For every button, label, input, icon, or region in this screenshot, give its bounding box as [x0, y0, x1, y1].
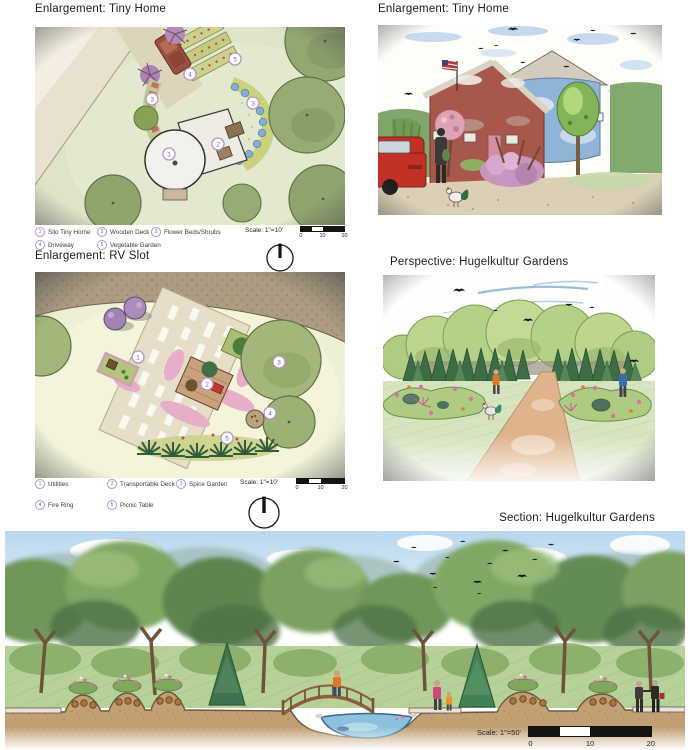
rv-slot-plan-drawing: 1 2 3 4 5: [35, 272, 345, 478]
legend-marker: 2: [107, 479, 117, 489]
hugelkultur-perspective-title: Perspective: Hugelkultur Gardens: [390, 256, 568, 268]
hugelkultur-perspective-drawing: [383, 275, 655, 481]
north-arrow-icon: [245, 494, 283, 532]
tiny-home-perspective-drawing: [378, 25, 662, 215]
legend-label: Spice Garden: [189, 481, 228, 488]
tiny-home-plan-title: Enlargement: Tiny Home: [35, 3, 166, 15]
scale-bar: [528, 726, 652, 737]
hugelkultur-section-drawing: [5, 531, 685, 750]
rv-slot-plan-title: Enlargement: RV Slot: [35, 250, 149, 262]
legend-marker: 4: [35, 500, 45, 510]
scale-ticks: 0 10 20: [528, 739, 652, 747]
scale-bar: [300, 226, 345, 232]
legend-marker: 5: [107, 500, 117, 510]
legend-label: Vegetable Garden: [110, 242, 161, 249]
legend-item: 2 Transportable Deck: [107, 479, 175, 489]
tiny-home-perspective-title: Enlargement: Tiny Home: [378, 3, 509, 15]
legend-item: 4 Driveway: [35, 240, 74, 250]
scale-bar: [296, 478, 345, 484]
legend-marker: 1: [35, 479, 45, 489]
legend-marker: 1: [35, 227, 45, 237]
tree-canopy-band: [5, 540, 685, 657]
legend-label: Flower Beds/Shrubs: [164, 229, 221, 236]
legend-label: Transportable Deck: [120, 481, 175, 488]
scale-ticks: 0 10 20: [300, 233, 345, 241]
legend-label: Driveway: [48, 242, 74, 249]
legend-item: 5 Picnic Table: [107, 500, 154, 510]
legend-item: 4 Fire Ring: [35, 500, 74, 510]
legend-label: Picnic Table: [120, 502, 154, 509]
scale-label: Scale: 1"=10': [240, 479, 278, 486]
north-arrow-icon: [263, 241, 297, 275]
scale-label: Scale: 1"=10': [245, 227, 283, 234]
legend-marker: 3: [176, 479, 186, 489]
legend-item: 3 Flower Beds/Shrubs: [151, 227, 221, 237]
legend-item: 2 Wooden Deck: [97, 227, 149, 237]
legend-item: 3 Spice Garden: [176, 479, 228, 489]
legend-marker: 3: [151, 227, 161, 237]
legend-item: 5 Vegetable Garden: [97, 240, 161, 250]
path-edge: [5, 708, 61, 713]
hugelkultur-section-title: Section: Hugelkultur Gardens: [467, 512, 687, 524]
scale-ticks: 0 10 20: [296, 485, 345, 493]
legend-label: Silo Tiny Home: [48, 229, 90, 236]
legend-label: Fire Ring: [48, 502, 74, 509]
legend-marker: 5: [97, 240, 107, 250]
legend-item: 1 Silo Tiny Home: [35, 227, 90, 237]
legend-marker: 2: [97, 227, 107, 237]
legend-item: 1 Utilities: [35, 479, 68, 489]
presentation-board-page: { "document": { "background": "#ffffff" …: [0, 0, 690, 750]
tiny-home-plan-drawing: 1 2 3 3 4 5: [35, 27, 345, 225]
scale-label: Scale: 1"=50': [477, 728, 521, 737]
legend-label: Utilities: [48, 481, 68, 488]
legend-label: Wooden Deck: [110, 229, 149, 236]
legend-marker: 4: [35, 240, 45, 250]
